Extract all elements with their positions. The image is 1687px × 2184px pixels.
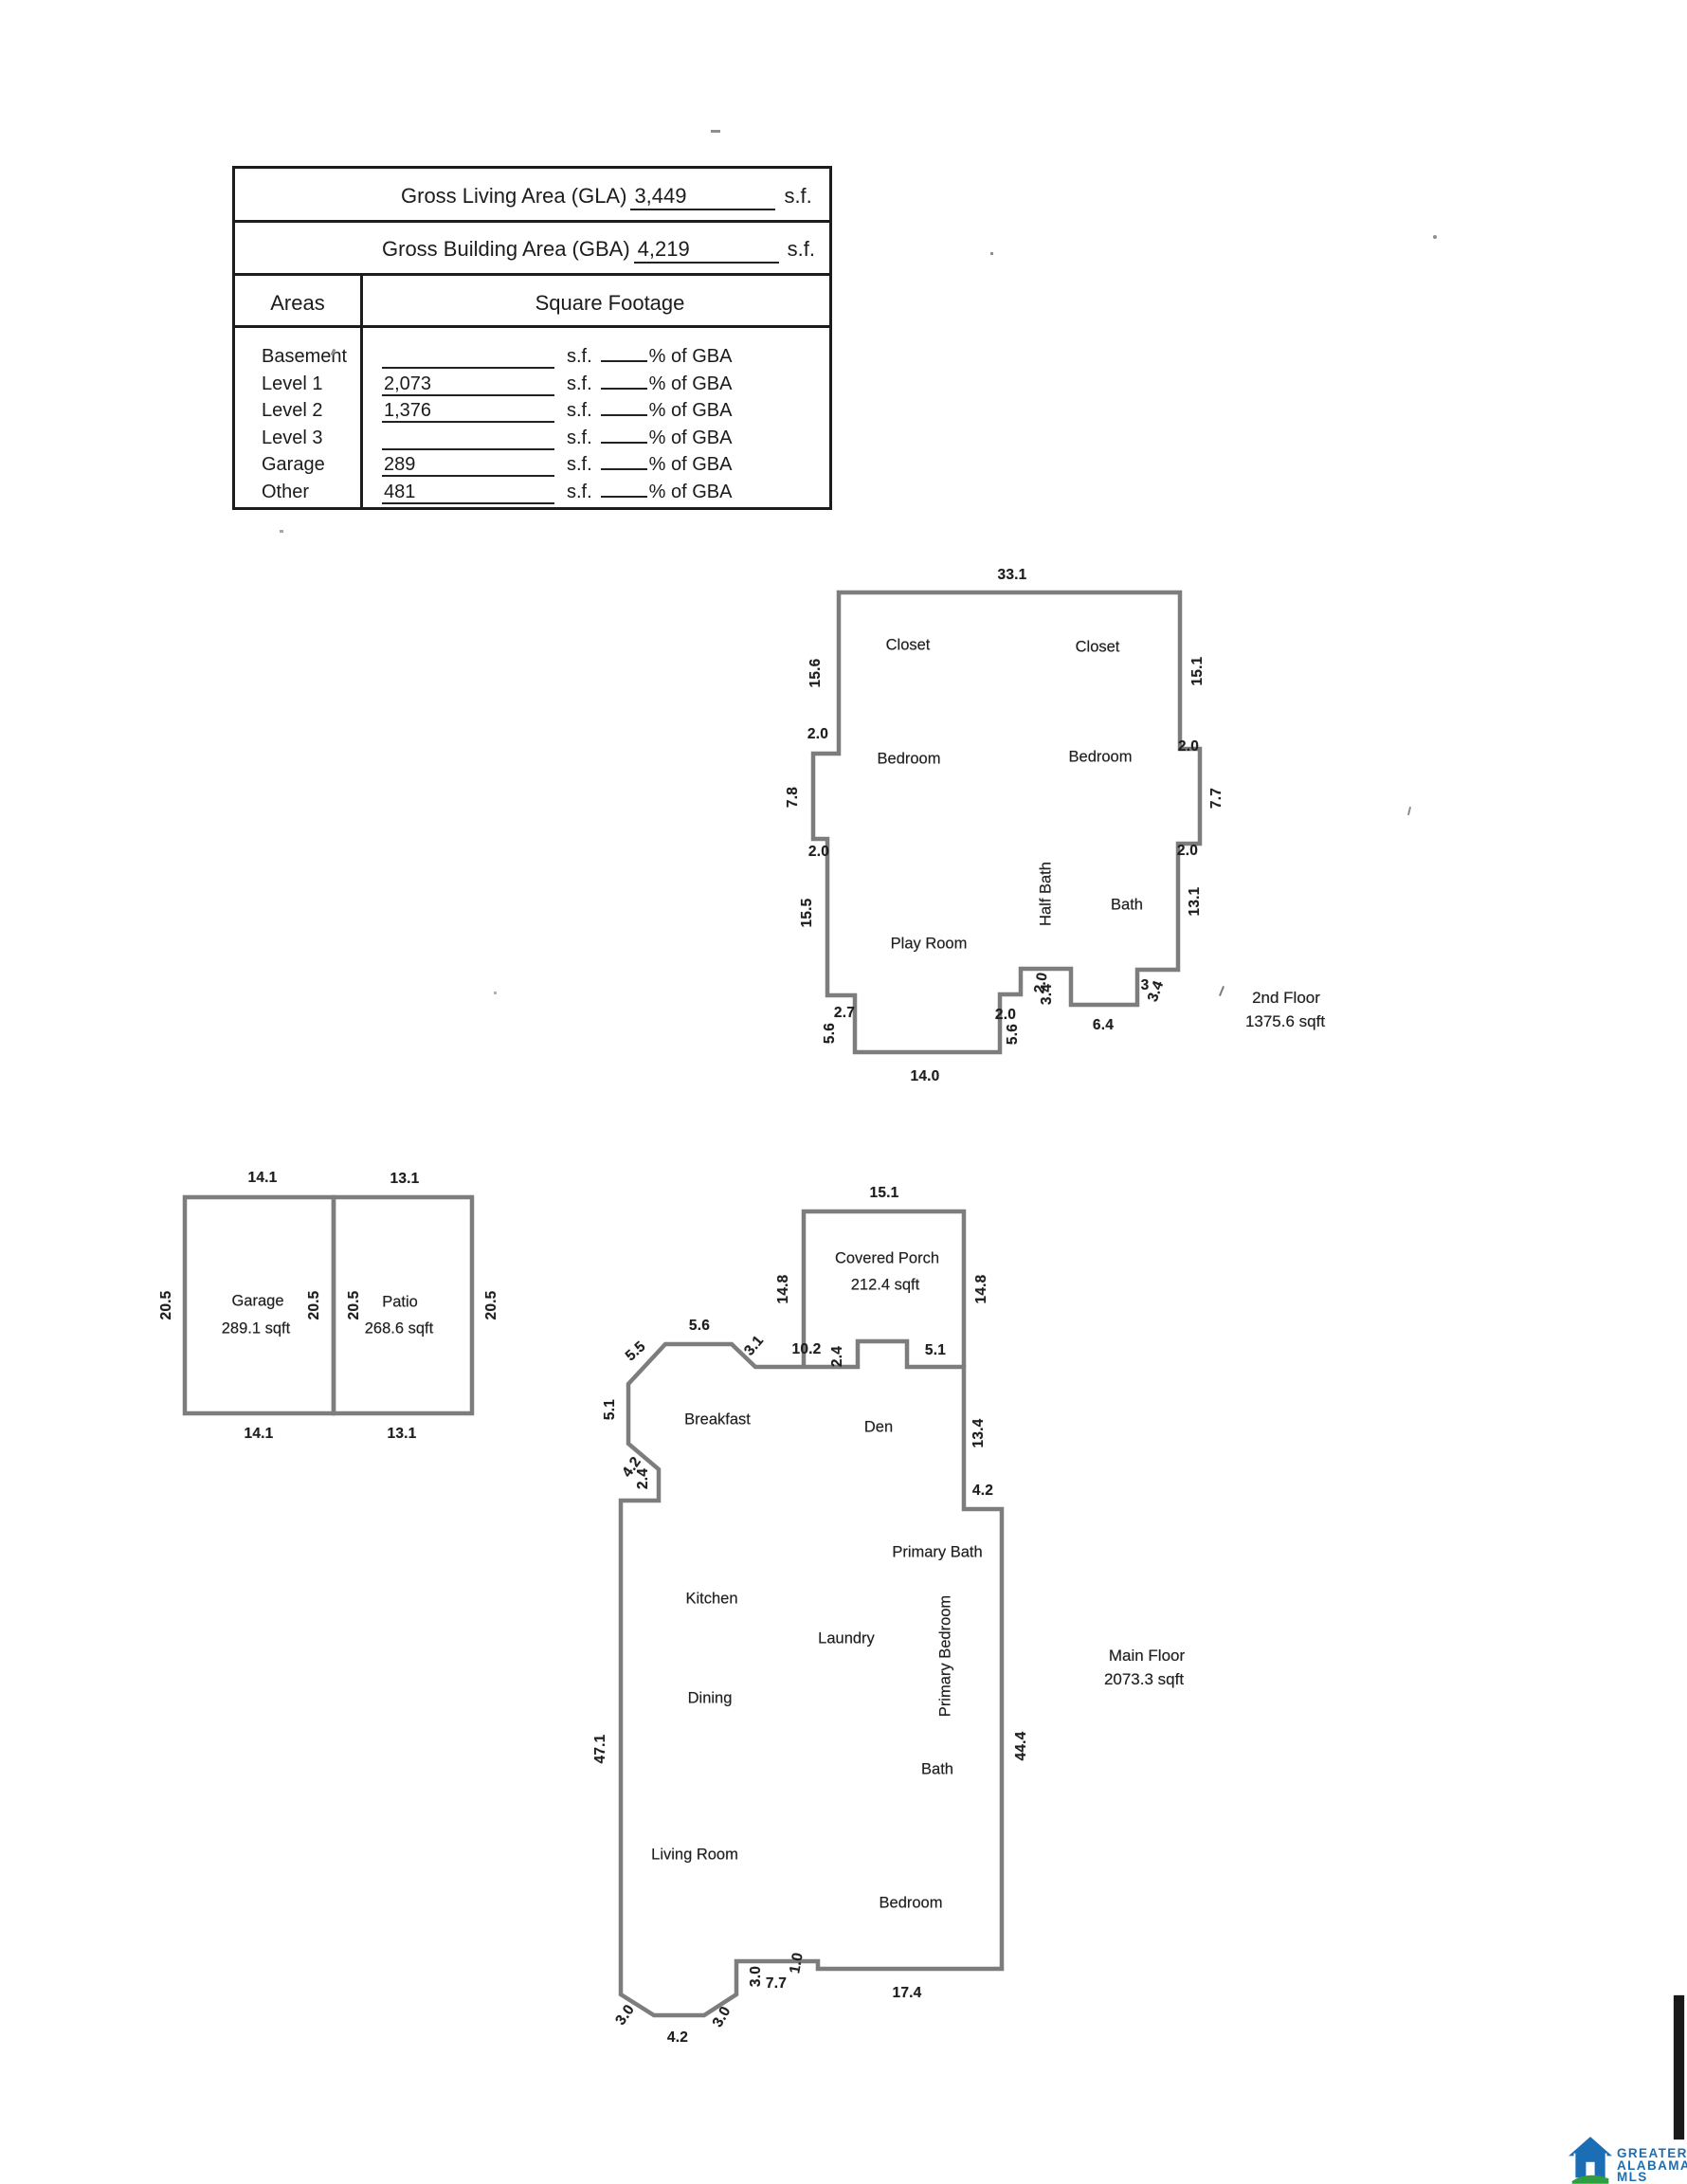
dimension-label: 14.8	[973, 1275, 990, 1304]
room-label: Closet	[1076, 639, 1120, 657]
table-row: Other 481 s.f. % of GBA	[235, 476, 829, 503]
area-rows: Basement s.f. % of GBA Level 1 2,073 s.f…	[235, 328, 829, 507]
area-value-line: 2,073	[382, 374, 554, 396]
dimension-label: 5.1	[602, 1399, 619, 1420]
area-value-line	[382, 428, 554, 450]
dimension-label: 14.1	[245, 1426, 274, 1443]
dimension-label: 47.1	[592, 1735, 609, 1764]
area-value-line	[382, 347, 554, 369]
sf-unit-label: s.f.	[567, 454, 592, 476]
room-label: Laundry	[818, 1630, 875, 1648]
column-divider	[360, 276, 363, 507]
dimension-label: 13.4	[970, 1419, 988, 1448]
logo-line-mls: MLS	[1617, 2172, 1687, 2184]
scan-speck	[280, 530, 283, 533]
gba-value: 4,219	[634, 237, 690, 261]
pct-of-gba-label: % of GBA	[649, 482, 733, 503]
gla-unit: s.f.	[784, 184, 811, 209]
table-row: Level 3 s.f. % of GBA	[235, 422, 829, 449]
room-label: 268.6 sqft	[365, 1320, 433, 1338]
pct-blank-line	[601, 368, 647, 390]
room-label: Den	[864, 1419, 893, 1437]
gba-row: Gross Building Area (GBA) 4,219 s.f.	[235, 223, 829, 276]
room-label: Garage	[231, 1293, 283, 1311]
dimension-label: 4.2	[972, 1483, 993, 1500]
table-row: Level 2 1,376 s.f. % of GBA	[235, 394, 829, 422]
gba-label: Gross Building Area (GBA)	[382, 237, 630, 262]
pct-of-gba-label: % of GBA	[649, 454, 733, 476]
gla-value: 3,449	[630, 184, 686, 208]
area-summary-table: Gross Living Area (GLA) 3,449 s.f. Gross…	[232, 166, 832, 510]
sf-unit-label: s.f.	[567, 400, 592, 422]
pct-blank-line	[601, 340, 647, 362]
area-value: 289	[382, 454, 415, 475]
area-value	[382, 428, 384, 448]
dimension-label: 14.0	[911, 1068, 940, 1085]
dimension-label: 3.4	[1039, 984, 1056, 1005]
area-value: 2,073	[382, 373, 431, 394]
room-label: Bath	[921, 1761, 953, 1779]
room-label: Bedroom	[880, 1895, 943, 1913]
pct-blank-line	[601, 448, 647, 470]
dimension-label: 44.4	[1013, 1732, 1030, 1761]
scan-speck	[990, 252, 993, 255]
area-value	[382, 346, 384, 367]
dimension-label: 5.6	[1005, 1024, 1022, 1045]
dimension-label: 3.0	[748, 1966, 765, 1987]
pct-of-gba-label: % of GBA	[649, 400, 733, 422]
gba-value-line: 4,219	[634, 237, 779, 264]
area-value-line: 481	[382, 482, 554, 504]
dimension-label: 17.4	[893, 1985, 922, 2002]
dimension-label: 7.7	[1208, 788, 1225, 809]
floor-caption: 1375.6 sqft	[1245, 1012, 1325, 1031]
floor-caption: Main Floor	[1109, 1647, 1185, 1665]
dimension-label: 2.4	[829, 1346, 846, 1367]
room-label: Closet	[886, 637, 931, 655]
gba-unit: s.f.	[788, 237, 815, 262]
dimension-label: 2.0	[995, 1007, 1016, 1024]
room-label: Living Room	[651, 1847, 738, 1865]
dimension-label: 5.6	[822, 1023, 839, 1044]
dimension-label: 7.7	[766, 1975, 787, 1993]
dimension-label: 15.1	[870, 1185, 899, 1202]
scan-speck	[494, 992, 497, 994]
areas-header: Areas	[235, 285, 360, 316]
pct-of-gba-label: % of GBA	[649, 346, 733, 368]
dimension-label: 7.8	[785, 787, 802, 808]
room-label: Primary Bedroom	[937, 1595, 955, 1717]
room-label: Breakfast	[684, 1411, 751, 1429]
scan-speck	[1433, 235, 1437, 239]
area-value: 481	[382, 482, 415, 502]
logo-text: GREATER ALABAMA MLS	[1617, 2148, 1687, 2184]
dimension-label: 13.1	[390, 1171, 420, 1188]
dimension-label: 2.0	[807, 726, 828, 743]
dimension-label: 10.2	[792, 1341, 822, 1358]
table-row: Level 1 2,073 s.f. % of GBA	[235, 368, 829, 395]
room-label: Half Bath	[1038, 862, 1056, 926]
dimension-label: 5.1	[925, 1342, 946, 1359]
room-label: Play Room	[891, 936, 968, 954]
dimension-label: 14.1	[248, 1170, 278, 1187]
dimension-label: 1.0	[787, 1952, 807, 1975]
pct-of-gba-label: % of GBA	[649, 428, 733, 449]
area-value-line: 289	[382, 455, 554, 477]
room-label: Primary Bath	[892, 1544, 982, 1562]
dimension-label: 2.0	[1177, 843, 1198, 860]
room-label: 212.4 sqft	[851, 1277, 919, 1295]
dimension-label: 20.5	[306, 1291, 323, 1320]
gla-label: Gross Living Area (GLA)	[401, 184, 626, 209]
house-icon	[1569, 2136, 1612, 2184]
dimension-label: 14.8	[775, 1275, 792, 1304]
room-label: Bath	[1111, 897, 1143, 915]
area-value: 1,376	[382, 400, 431, 421]
table-header-row: Areas Square Footage	[235, 276, 829, 328]
dimension-label: 2.0	[808, 844, 829, 861]
table-row: Garage 289 s.f. % of GBA	[235, 448, 829, 476]
sf-unit-label: s.f.	[567, 346, 592, 368]
room-label: 289.1 sqft	[222, 1320, 290, 1338]
dimension-label: 2.0	[1178, 738, 1199, 755]
square-footage-header: Square Footage	[360, 285, 829, 316]
scanned-appraisal-sheet: Gross Living Area (GLA) 3,449 s.f. Gross…	[0, 0, 1687, 2184]
gamls-logo: GREATER ALABAMA MLS	[1569, 2136, 1687, 2184]
dimension-label: 2.7	[834, 1005, 855, 1022]
room-label: Bedroom	[1069, 749, 1133, 767]
sf-unit-label: s.f.	[567, 373, 592, 395]
room-label: Covered Porch	[835, 1250, 939, 1268]
dimension-label: 2.4	[635, 1468, 652, 1489]
dimension-label: 15.5	[799, 899, 816, 928]
gla-row: Gross Living Area (GLA) 3,449 s.f.	[235, 169, 829, 223]
dimension-label: 20.5	[483, 1291, 500, 1320]
dimension-label: 6.4	[1093, 1017, 1114, 1034]
floor-caption: 2073.3 sqft	[1104, 1670, 1184, 1689]
area-value-line: 1,376	[382, 401, 554, 423]
dimension-label: 15.6	[807, 659, 825, 688]
dimension-label: 20.5	[158, 1291, 175, 1320]
dimension-label: 20.5	[346, 1291, 363, 1320]
sf-unit-label: s.f.	[567, 482, 592, 503]
room-label: Bedroom	[878, 751, 941, 769]
dimension-label: 13.1	[1187, 887, 1204, 917]
pct-blank-line	[601, 476, 647, 498]
floor-caption: 2nd Floor	[1252, 989, 1320, 1008]
sf-unit-label: s.f.	[567, 428, 592, 449]
room-label: Patio	[382, 1294, 418, 1312]
table-row: Basement s.f. % of GBA	[235, 340, 829, 368]
scan-artifact-strip	[1674, 1995, 1684, 2139]
dimension-label: 13.1	[388, 1426, 417, 1443]
dimension-label: 33.1	[998, 567, 1027, 584]
dimension-label: 4.2	[667, 2029, 688, 2047]
room-label: Dining	[688, 1690, 733, 1708]
gla-value-line: 3,449	[630, 184, 775, 210]
pct-blank-line	[601, 422, 647, 444]
pct-blank-line	[601, 394, 647, 416]
pct-of-gba-label: % of GBA	[649, 373, 733, 395]
scan-speck	[711, 130, 720, 133]
dimension-label: 5.6	[689, 1318, 710, 1335]
dimension-label: 15.1	[1189, 657, 1206, 686]
room-label: Kitchen	[685, 1591, 737, 1609]
